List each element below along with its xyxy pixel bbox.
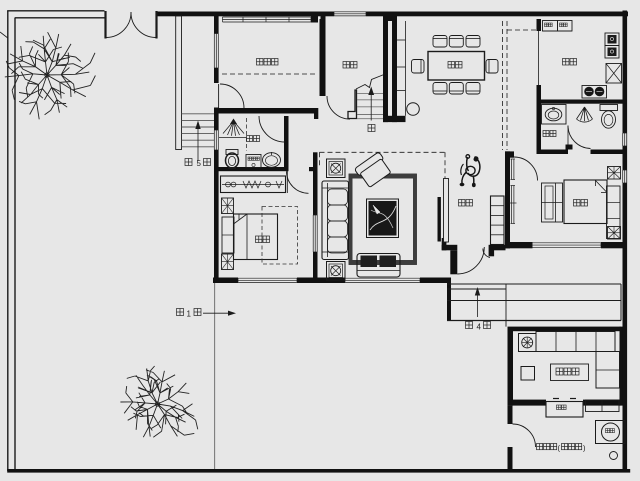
svg-text:4: 4: [477, 323, 482, 332]
svg-text:5: 5: [197, 159, 202, 168]
svg-text:1: 1: [187, 310, 192, 319]
